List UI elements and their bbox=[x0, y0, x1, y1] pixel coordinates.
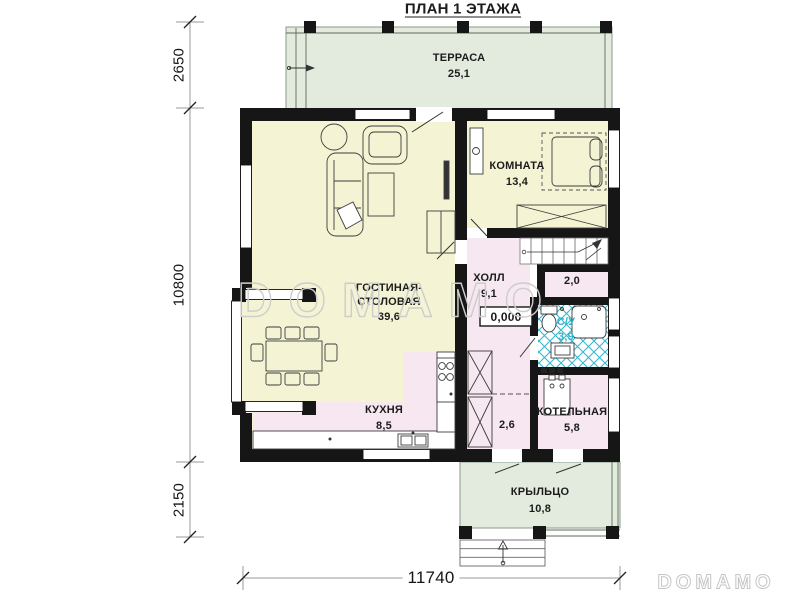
boiler-label: КОТЕЛЬНАЯ bbox=[537, 406, 608, 418]
dresser bbox=[470, 128, 483, 174]
entry-area: 2,6 bbox=[499, 419, 515, 431]
door-opening-boiler bbox=[553, 449, 583, 462]
bathroom-area: 3,9 bbox=[558, 331, 574, 343]
porch-steps bbox=[460, 540, 545, 566]
dim-porch-depth: 2150 bbox=[171, 483, 188, 517]
window-bathroom-right-1 bbox=[609, 298, 620, 330]
boiler-area: 5,8 bbox=[564, 422, 580, 434]
tv-living bbox=[444, 161, 449, 199]
window-bathroom-right-2 bbox=[609, 336, 620, 368]
kitchen-label: КУХНЯ bbox=[365, 404, 403, 416]
porch-area: 10,8 bbox=[529, 503, 551, 515]
bedroom-area: 13,4 bbox=[506, 176, 528, 188]
bay-post bbox=[232, 401, 246, 415]
wall-stairs-bottom bbox=[537, 264, 608, 272]
shower bbox=[572, 306, 606, 338]
window-living-top bbox=[355, 110, 410, 120]
bathroom-label: С/У bbox=[557, 316, 575, 328]
porch-label: КРЫЛЬЦО bbox=[511, 486, 569, 498]
terrace-label: ТЕРРАСА bbox=[433, 52, 485, 64]
watermark-corner: DOMAMO bbox=[657, 572, 774, 595]
hall-floor bbox=[467, 238, 530, 449]
bedroom-label: КОМНАТА bbox=[489, 160, 544, 172]
page-title: ПЛАН 1 ЭТАЖА bbox=[405, 1, 521, 18]
terrace-area: 25,1 bbox=[448, 68, 470, 80]
door-opening-entry bbox=[492, 449, 522, 462]
door-opening-terrace bbox=[416, 107, 452, 122]
dim-house-width: 11740 bbox=[402, 568, 459, 588]
bay-post bbox=[302, 401, 316, 415]
window-kitchen-bottom bbox=[363, 450, 430, 460]
door-opening-living-hall bbox=[455, 240, 467, 264]
kitchen-area: 8,5 bbox=[376, 420, 392, 432]
dim-house-depth: 10800 bbox=[171, 264, 188, 307]
window-bay-bottom bbox=[245, 402, 303, 412]
window-bedroom-right bbox=[609, 130, 620, 188]
dim-terrace-depth: 2650 bbox=[171, 48, 188, 82]
watermark-center: DOMAMO bbox=[238, 274, 558, 329]
stair-storage-area: 2,0 bbox=[564, 275, 580, 287]
window-boiler-right bbox=[609, 378, 620, 432]
window-living-left bbox=[241, 165, 252, 248]
window-bedroom-top bbox=[487, 110, 555, 120]
bathroom-sink bbox=[551, 343, 574, 358]
floor-plan-page: ПЛАН 1 ЭТАЖА ТЕРРАСА 25,1 ГОСТИНАЯ- СТОЛ… bbox=[0, 0, 800, 600]
